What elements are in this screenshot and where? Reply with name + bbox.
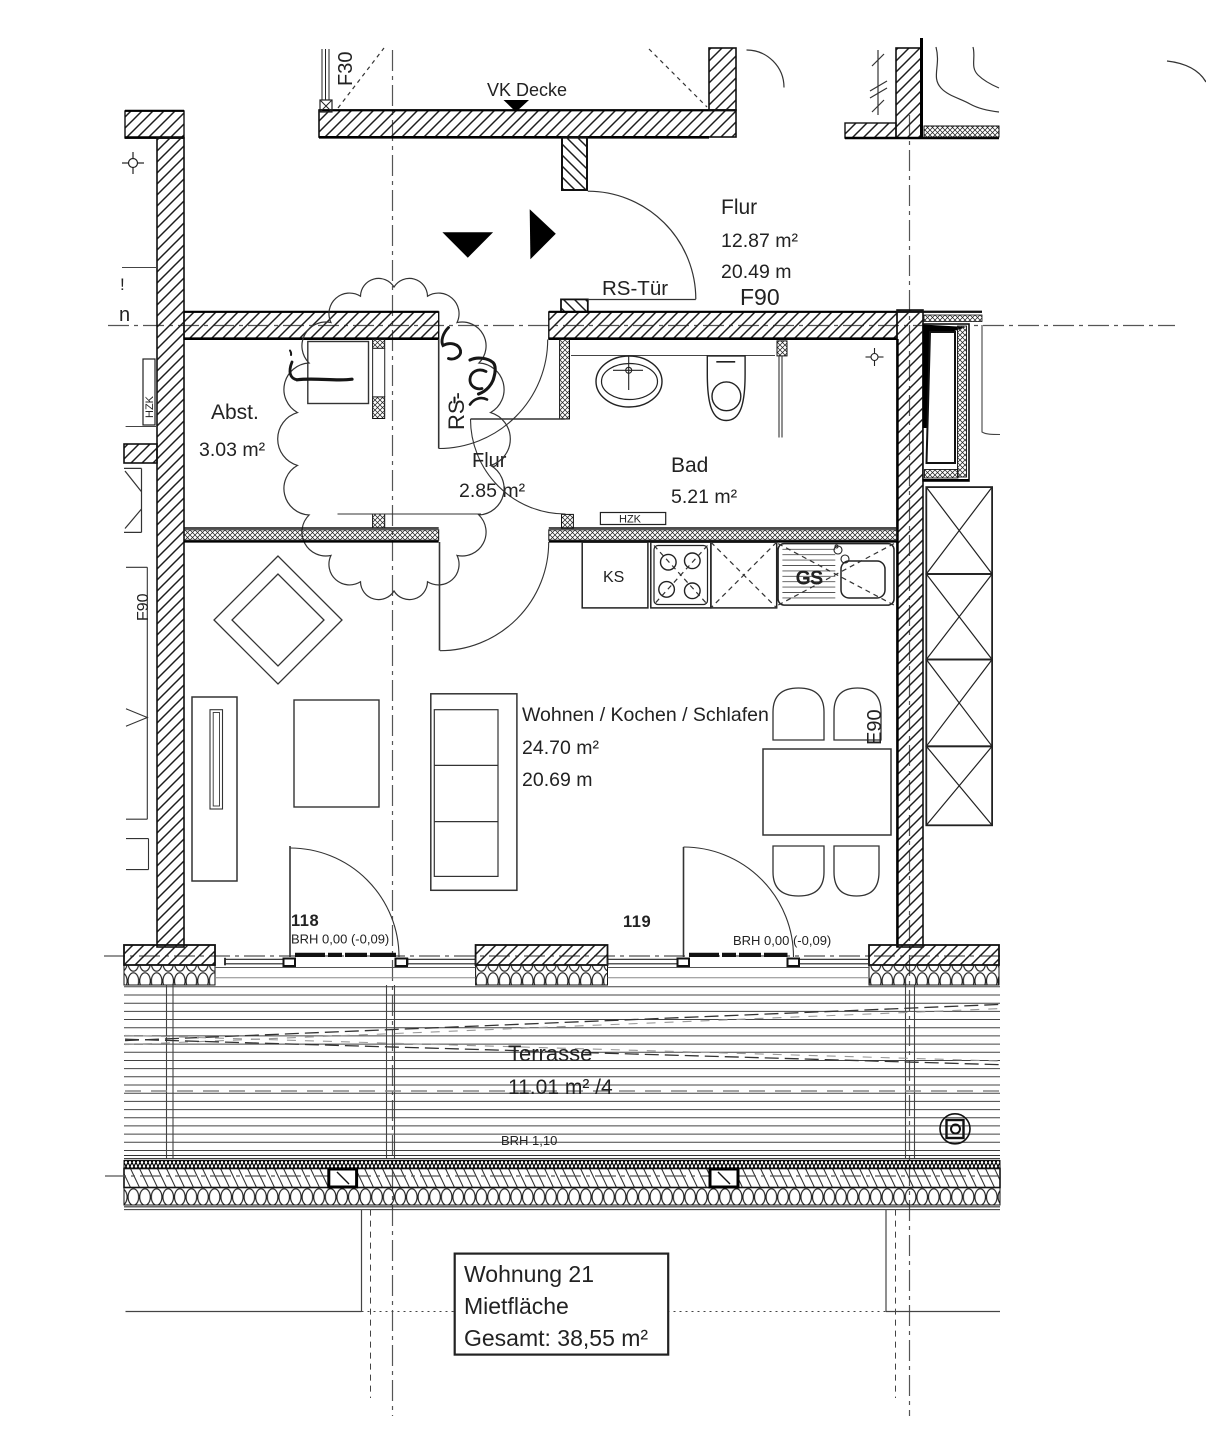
svg-text:Flur: Flur [721,196,757,219]
svg-text:BRH 1,10: BRH 1,10 [501,1133,557,1148]
svg-text:Abst.: Abst. [211,401,259,424]
svg-text:2.85 m²: 2.85 m² [459,480,526,502]
svg-text:BRH 0,00 (-0,09): BRH 0,00 (-0,09) [291,932,389,947]
svg-text:119: 119 [623,913,651,931]
svg-text:Flur: Flur [472,450,507,472]
svg-text:RS-Tür: RS-Tür [602,277,668,300]
svg-text:n: n [119,304,130,326]
svg-text:VK Decke: VK Decke [487,80,567,100]
svg-text:20.49 m: 20.49 m [721,261,791,283]
svg-text:E90: E90 [864,709,886,745]
svg-text:KS: KS [603,569,624,586]
svg-text:Wohnung 21: Wohnung 21 [464,1261,594,1287]
svg-text:RS-: RS- [444,392,469,430]
svg-text:3.03 m²: 3.03 m² [199,439,266,461]
svg-text:24.70 m²: 24.70 m² [522,737,599,759]
svg-text:Mietfläche: Mietfläche [464,1293,569,1319]
svg-text:Gesamt: 38,55 m²: Gesamt: 38,55 m² [464,1325,648,1351]
svg-text:Wohnen / Kochen / Schlafen: Wohnen / Kochen / Schlafen [522,704,769,726]
svg-text:HZK: HZK [144,395,156,418]
svg-text:F30: F30 [335,52,357,86]
svg-text:Terrasse: Terrasse [508,1041,592,1066]
svg-text:12.87 m²: 12.87 m² [721,230,798,252]
svg-text:11.01 m² /4: 11.01 m² /4 [508,1076,613,1099]
svg-text:HZK: HZK [619,514,642,526]
svg-text:5.21 m²: 5.21 m² [671,486,738,508]
svg-text:GS: GS [796,567,823,588]
svg-text:F90: F90 [135,593,152,621]
svg-text:BRH 0,00 (-0,09): BRH 0,00 (-0,09) [733,933,831,948]
svg-text:F90: F90 [740,284,780,310]
svg-text:118: 118 [291,912,319,930]
svg-text:!: ! [120,275,125,294]
svg-text:Bad: Bad [671,454,708,477]
svg-text:20.69 m: 20.69 m [522,769,592,791]
